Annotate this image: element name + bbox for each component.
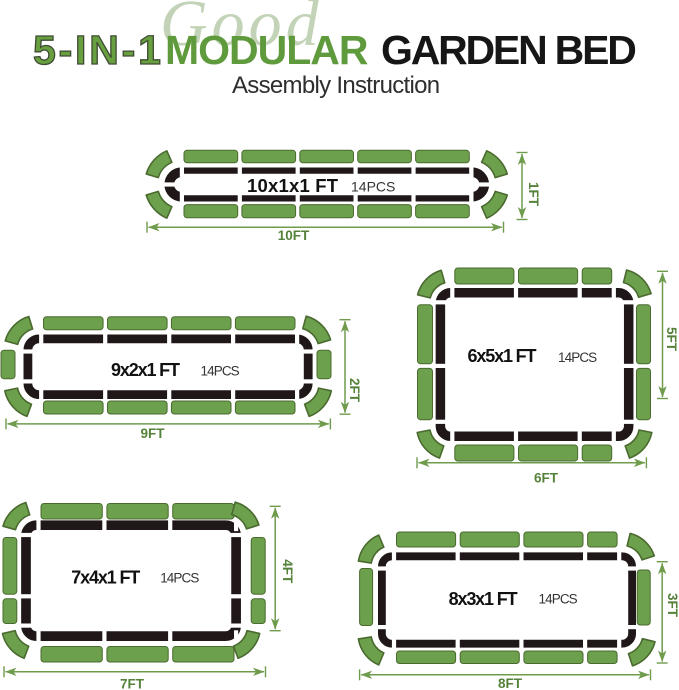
svg-text:3FT: 3FT (665, 593, 679, 618)
svg-text:14PCS: 14PCS (558, 350, 597, 365)
svg-text:6FT: 6FT (534, 471, 559, 486)
svg-text:9x2x1 FT: 9x2x1 FT (111, 360, 180, 380)
svg-text:8FT: 8FT (498, 676, 523, 690)
svg-text:4FT: 4FT (280, 559, 295, 584)
svg-text:6x5x1 FT: 6x5x1 FT (468, 346, 537, 366)
svg-text:14PCS: 14PCS (539, 592, 578, 607)
svg-text:9FT: 9FT (140, 426, 165, 441)
svg-text:10x1x1 FT: 10x1x1 FT (247, 175, 339, 196)
svg-text:7FT: 7FT (120, 677, 145, 690)
svg-text:14PCS: 14PCS (160, 570, 199, 585)
svg-text:14PCS: 14PCS (351, 179, 395, 195)
svg-text:7x4x1 FT: 7x4x1 FT (71, 567, 140, 587)
svg-text:10FT: 10FT (278, 228, 310, 243)
svg-text:8x3x1 FT: 8x3x1 FT (449, 589, 518, 609)
svg-text:14PCS: 14PCS (201, 363, 240, 378)
svg-text:5FT: 5FT (664, 327, 679, 352)
svg-text:1FT: 1FT (526, 182, 541, 207)
svg-text:2FT: 2FT (347, 378, 362, 403)
